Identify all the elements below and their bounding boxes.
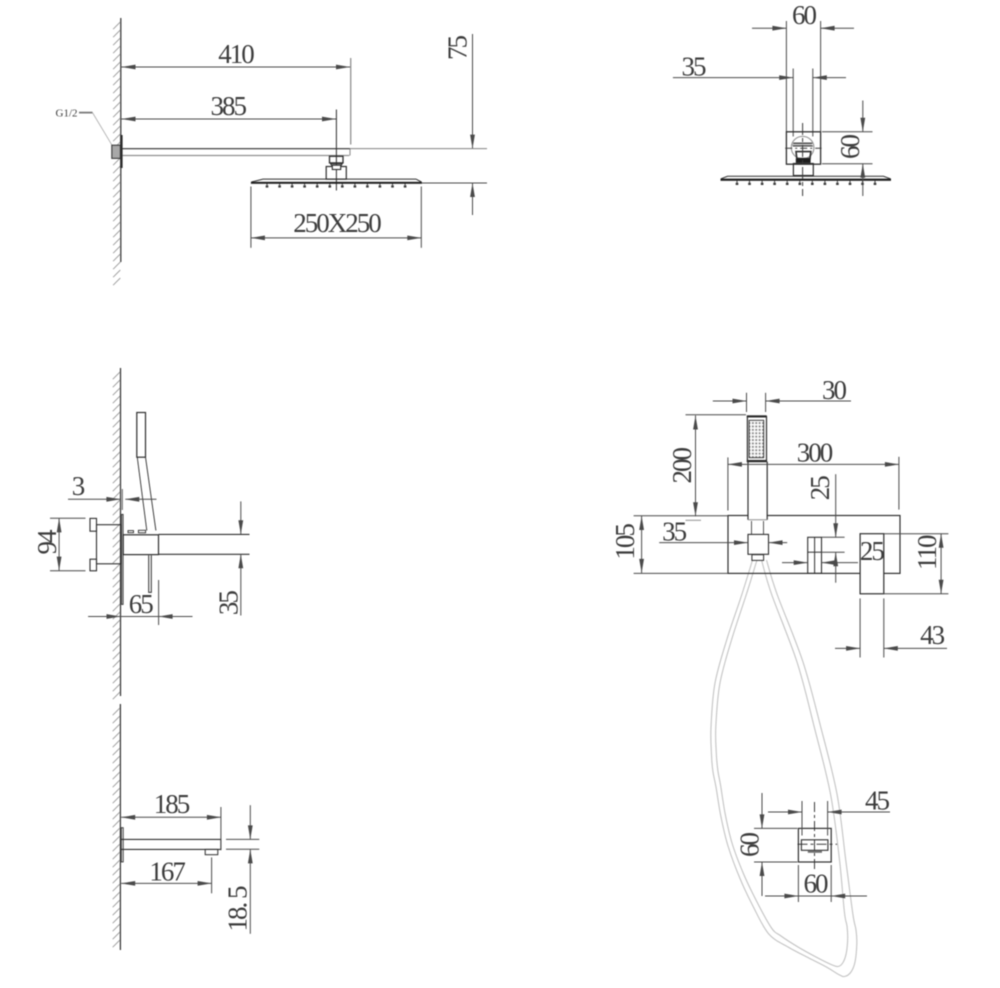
svg-text:60: 60	[735, 833, 765, 858]
svg-text:35: 35	[662, 517, 687, 547]
svg-text:250X250: 250X250	[293, 208, 381, 238]
svg-text:3: 3	[72, 471, 85, 501]
svg-text:167: 167	[149, 856, 185, 886]
svg-text:35: 35	[214, 591, 244, 616]
svg-text:60: 60	[804, 869, 829, 899]
svg-text:35: 35	[682, 52, 707, 82]
svg-text:110: 110	[912, 535, 942, 570]
svg-text:300: 300	[797, 438, 833, 468]
svg-text:25: 25	[805, 476, 835, 501]
svg-text:94: 94	[32, 529, 62, 555]
svg-text:200: 200	[667, 448, 697, 484]
svg-text:18. 5: 18. 5	[223, 886, 253, 932]
svg-text:385: 385	[211, 91, 247, 121]
svg-text:75: 75	[443, 36, 473, 61]
svg-text:45: 45	[865, 786, 890, 816]
svg-text:185: 185	[154, 789, 190, 819]
svg-text:60: 60	[792, 0, 817, 30]
svg-text:43: 43	[920, 620, 945, 650]
svg-text:105: 105	[610, 524, 640, 560]
svg-text:60: 60	[835, 135, 865, 160]
svg-text:30: 30	[822, 375, 847, 405]
svg-text:G1/2: G1/2	[56, 108, 78, 120]
svg-text:65: 65	[129, 589, 154, 619]
svg-text:410: 410	[218, 39, 254, 69]
svg-text:25: 25	[860, 536, 885, 566]
